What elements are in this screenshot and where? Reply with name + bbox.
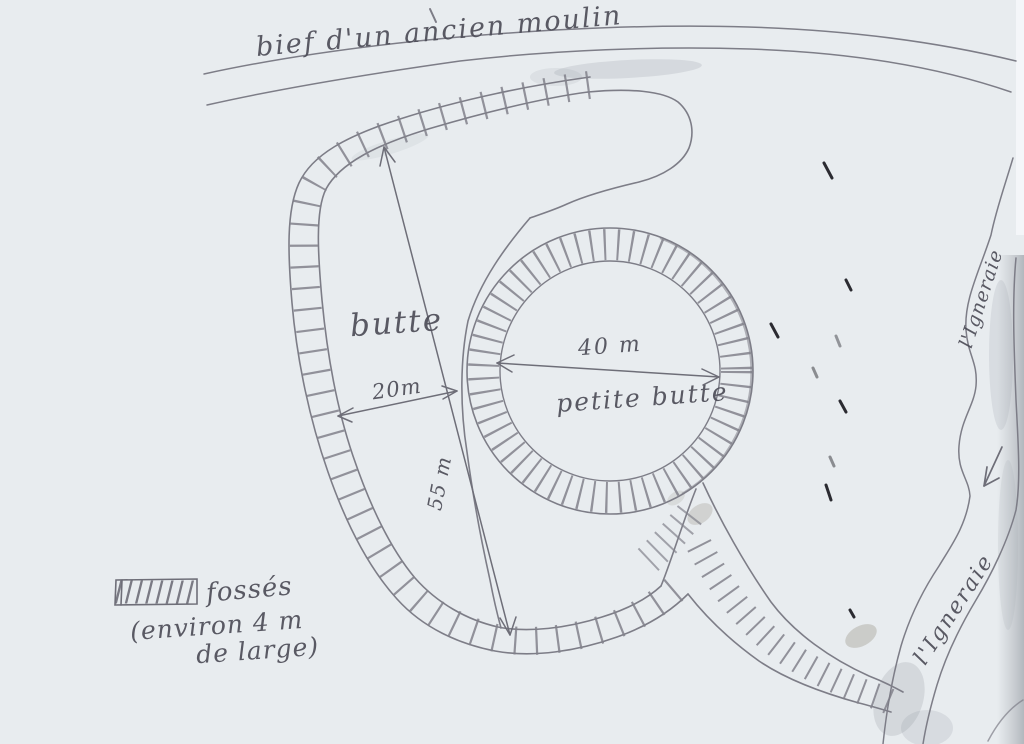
- moat-inner-circle: [500, 261, 720, 481]
- junction-hatching: [648, 509, 694, 560]
- measurement-40m-label: 40 m: [577, 334, 642, 360]
- legend-title: fossés: [205, 573, 294, 606]
- enclosure-inner-edge: [318, 92, 661, 630]
- moat-hatching: [484, 245, 737, 498]
- hand-drawn-site-map: bief d'un ancien moulin butte 20m 40 m p…: [0, 0, 1024, 744]
- mound-label: butte: [349, 305, 444, 342]
- enclosure-hook-edge: [530, 90, 692, 218]
- legend-swatch: [115, 579, 197, 605]
